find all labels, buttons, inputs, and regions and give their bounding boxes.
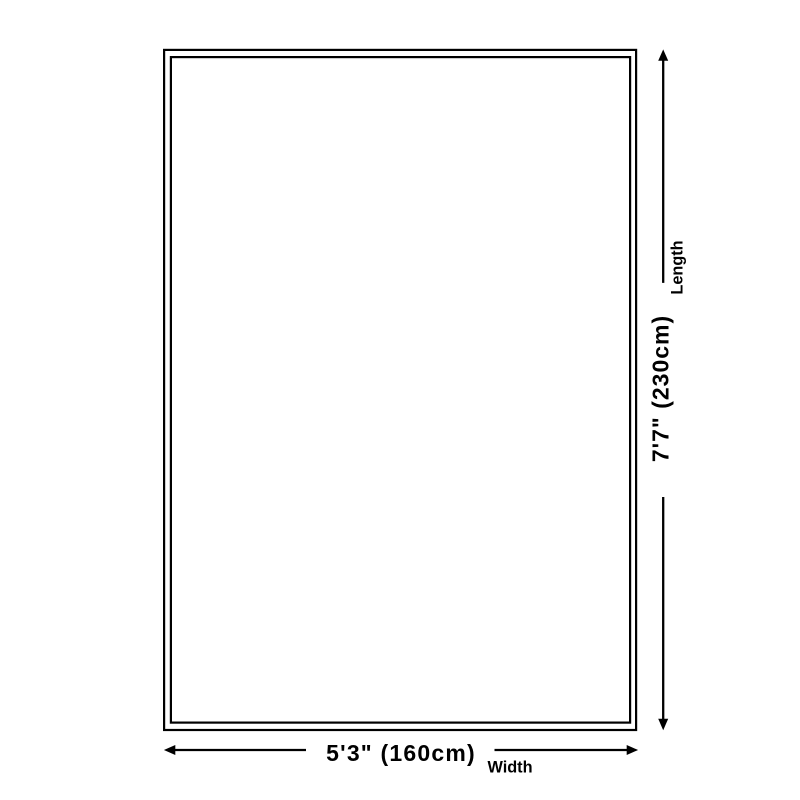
svg-text:5'3" (160cm): 5'3" (160cm) <box>326 740 476 766</box>
svg-text:Length: Length <box>669 240 687 294</box>
svg-text:Width: Width <box>487 758 532 776</box>
svg-text:7'7" (230cm): 7'7" (230cm) <box>648 315 674 462</box>
